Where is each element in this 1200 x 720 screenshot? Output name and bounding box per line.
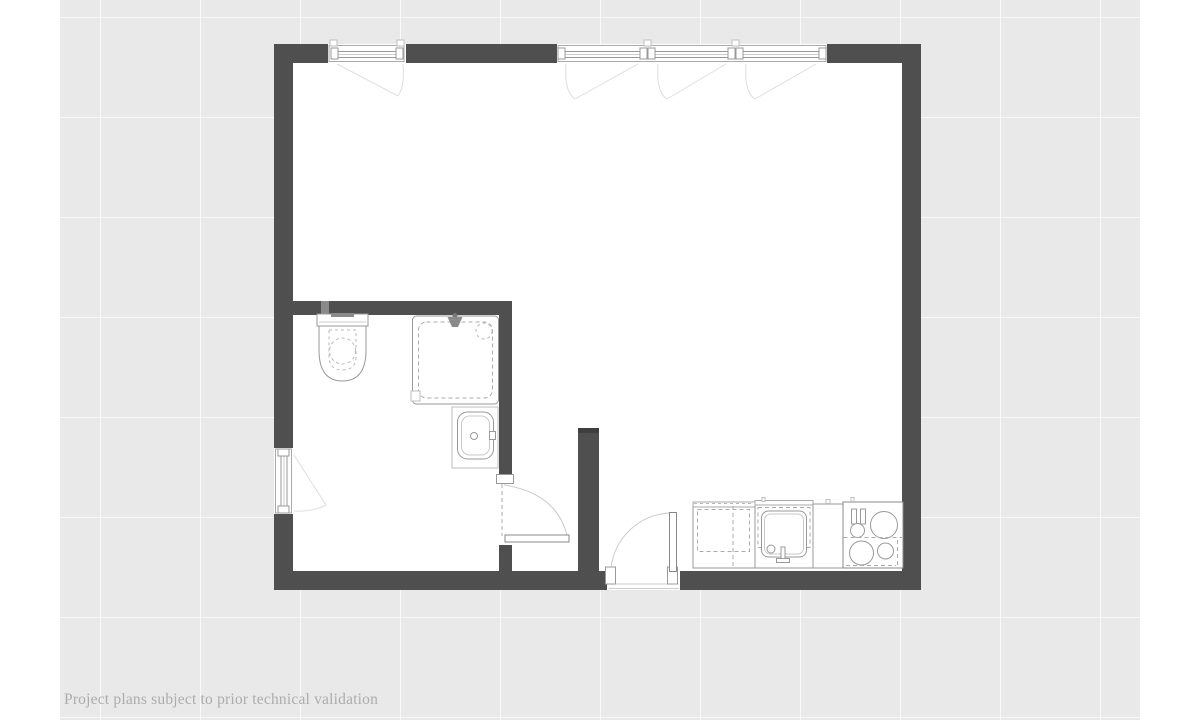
- shower-tray: [413, 316, 499, 404]
- window-end-cap: [331, 48, 338, 59]
- wall-bathroom-vertical: [499, 301, 512, 481]
- kitchen-counter: [813, 500, 843, 569]
- burner-medium: [878, 543, 894, 559]
- wall-bottom-left: [274, 571, 607, 590]
- door-jamb: [606, 567, 616, 584]
- window-end-cap: [278, 506, 289, 513]
- floorplan: [0, 0, 1200, 720]
- wall-bathroom-stub: [499, 545, 512, 571]
- wall-entry-stub-cap: [578, 428, 599, 433]
- toilet-bowl: [319, 326, 366, 381]
- window-mullion: [736, 48, 743, 59]
- cooktop-control: [861, 509, 866, 524]
- window-mullion: [640, 48, 647, 59]
- window-end-cap: [558, 48, 565, 59]
- burner-large: [871, 512, 898, 539]
- window-jamb-tab: [330, 40, 337, 46]
- wall-bathroom-horizontal: [274, 301, 512, 315]
- wall-bottom-right: [680, 571, 921, 590]
- shower: [411, 313, 499, 404]
- kitchen-sink: [755, 498, 813, 569]
- cooktop: [843, 498, 903, 569]
- window-end-cap: [278, 449, 289, 456]
- wall-right: [902, 44, 921, 590]
- window-mullion: [728, 48, 735, 59]
- sink-drain: [767, 545, 775, 553]
- kitchen-cabinet: [693, 502, 755, 568]
- window-mullion-tab: [644, 40, 651, 46]
- cooktop-control: [852, 509, 857, 524]
- washbasin: [452, 407, 498, 468]
- wall-top-mid: [406, 44, 557, 63]
- counter-tick: [826, 500, 830, 504]
- counter-tick: [851, 498, 854, 502]
- door-leaf: [670, 513, 677, 572]
- page: Project plans subject to prior technical…: [0, 0, 1200, 720]
- wall-entry-stub: [578, 428, 599, 571]
- burner-large: [850, 541, 874, 565]
- basin-faucet: [490, 432, 496, 440]
- window-mullion: [648, 48, 655, 59]
- window-mullion-tab: [732, 40, 739, 46]
- basin-drain: [471, 433, 478, 440]
- kitchen: [693, 498, 903, 569]
- wall-left-upper: [274, 44, 293, 448]
- door-leaf: [505, 535, 569, 542]
- door-jamb: [497, 475, 514, 484]
- window-jamb-tab: [397, 40, 404, 46]
- burner-small: [851, 524, 865, 538]
- toilet-inlet-mark: [321, 301, 329, 314]
- shower-door-hinge: [411, 391, 420, 401]
- disclaimer-text: Project plans subject to prior technical…: [64, 691, 378, 709]
- counter-tick: [762, 498, 765, 502]
- window-end-cap: [396, 48, 403, 59]
- sink-faucet-base: [777, 559, 790, 563]
- toilet-flush-plate: [331, 313, 354, 317]
- toilet: [317, 313, 368, 381]
- window-end-cap: [819, 48, 826, 59]
